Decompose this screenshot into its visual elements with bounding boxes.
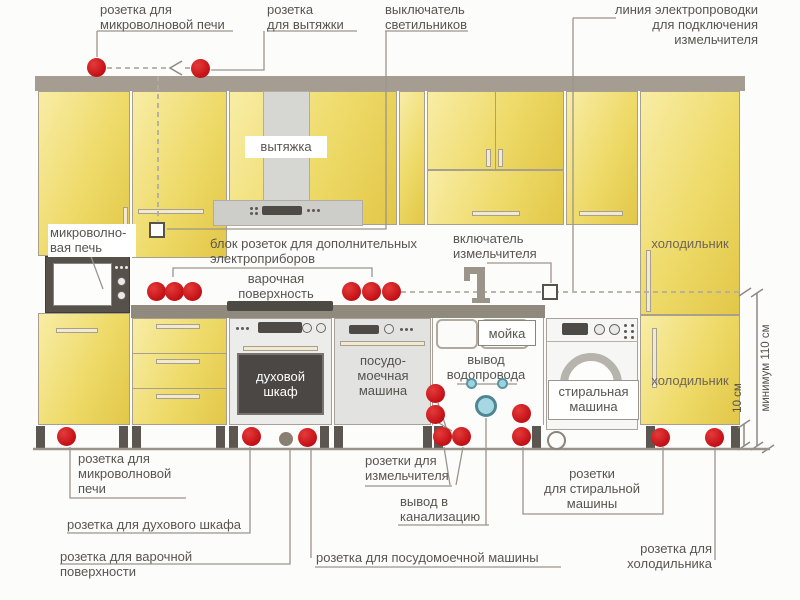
socket-dot-grinder-cabinet-2 (426, 405, 445, 424)
socket-dot-hood (191, 59, 210, 78)
label-socket-hood: розетка для вытяжки (267, 2, 344, 32)
label-sewer-outlet: вывод в канализацию (400, 494, 480, 524)
socket-dot-block-1 (147, 282, 166, 301)
socket-dot-oven (242, 427, 261, 446)
socket-dot-dishwasher (298, 428, 317, 447)
label-cooktop: варочная поверхность (226, 271, 326, 301)
arrow-left-icon (170, 61, 182, 75)
sewer-outlet-circle (475, 395, 497, 417)
socket-dot-washer-cabinet (512, 404, 531, 423)
light-switch-symbol (149, 222, 165, 238)
socket-dot-washer-right (651, 428, 670, 447)
socket-dot-block-6 (382, 282, 401, 301)
water-supply-dot (466, 378, 477, 389)
label-socket-oven: розетка для духового шкафа (67, 517, 241, 532)
label-grinder-switch: включатель измельчителя (453, 231, 537, 261)
socket-dot-grinder-cabinet-1 (426, 384, 445, 403)
label-socket-block: блок розеток для дополнительных электроп… (210, 236, 417, 266)
socket-dot-grinder-plinth-2 (452, 427, 471, 446)
dimension-10cm: 10 см (732, 368, 744, 428)
socket-dot-block-2 (165, 282, 184, 301)
socket-dot-fridge (705, 428, 724, 447)
label-microwave: микроволно- вая печь (48, 224, 136, 257)
label-socket-microwave-bottom: розетка для микроволновой печи (78, 451, 171, 496)
water-supply-dot (497, 378, 508, 389)
socket-dot-grinder-plinth-1 (433, 427, 452, 446)
grinder-switch-symbol (542, 284, 558, 300)
label-light-switch: выключатель светильников (385, 2, 467, 32)
label-grinder-wiring-line: линия электропроводки для подключения из… (598, 2, 758, 47)
socket-dot-block-3 (183, 282, 202, 301)
socket-dot-block-5 (362, 282, 381, 301)
socket-dot-block-4 (342, 282, 361, 301)
dimension-min-110cm: минимум 110 см (760, 318, 772, 418)
socket-dot-microwave-bottom (57, 427, 76, 446)
label-socket-dishwasher: розетка для посудомоечной машины (316, 550, 539, 565)
label-socket-microwave-top: розетка для микроволновой печи (100, 2, 225, 32)
socket-dot-microwave-top (87, 58, 106, 77)
kitchen-wiring-diagram: вытяжка холодильник холодильник духовой … (0, 0, 800, 600)
label-sockets-washer: розетки для стиральной машины (536, 466, 648, 511)
socket-dot-washer-left (512, 427, 531, 446)
wiring-dashed-lines (107, 68, 741, 292)
sewer-drain-icon (547, 431, 566, 450)
label-socket-cooktop: розетка для варочной поверхности (60, 549, 192, 579)
faucet-icon (464, 267, 490, 303)
label-sockets-grinder: розетки для измельчителя (365, 453, 449, 483)
socket-dot-cooktop (279, 432, 293, 446)
label-socket-fridge: розетка для холодильника (612, 541, 712, 571)
